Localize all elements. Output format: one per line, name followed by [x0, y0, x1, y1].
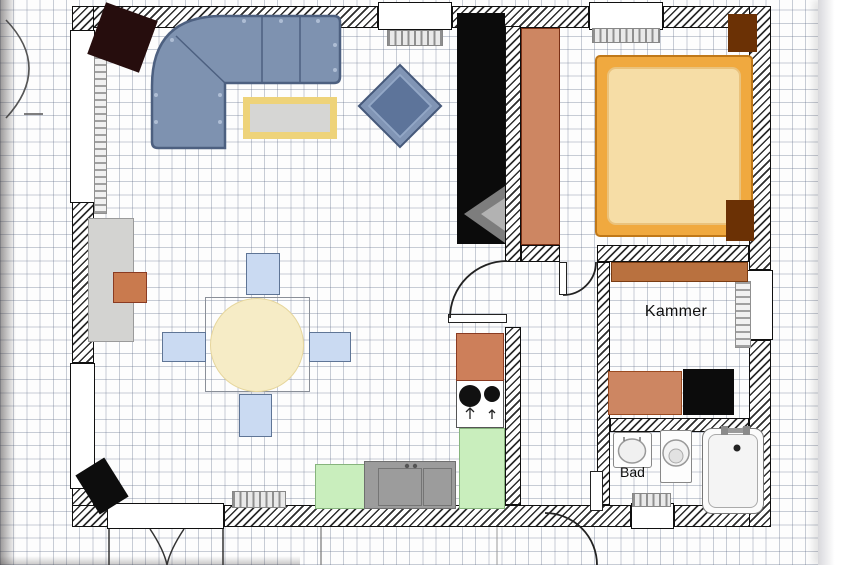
room-label-bad: Bad [620, 464, 664, 480]
stove [456, 380, 504, 428]
window-top-bedroom [589, 2, 663, 30]
window-left-upper [70, 30, 95, 203]
door-leaf-living [448, 314, 507, 323]
sink-basin-left [378, 468, 422, 506]
nightstand-bedroom [728, 14, 757, 52]
bed-mattress [607, 67, 741, 225]
wardrobe-bedroom [521, 28, 560, 245]
coffee-table [243, 97, 337, 139]
washbasin [613, 432, 652, 468]
box-on-sideboard [113, 272, 147, 303]
tv-cabinet [457, 13, 505, 244]
sink-basin-right [423, 468, 452, 506]
armchair-seat [367, 73, 432, 138]
cabinet-kammer-black [683, 369, 734, 415]
door-leaf-entry [590, 471, 603, 511]
counter-green-left [315, 464, 365, 509]
radiator-left-wall [94, 36, 107, 214]
chair-east [309, 332, 351, 362]
kitchen-cabinet [456, 333, 504, 381]
radiator-living-top [387, 30, 443, 46]
floor-plan-page: Kammer Bad [0, 0, 848, 565]
radiator-living-bottom [232, 491, 286, 508]
door-leaf-bedroom [559, 262, 567, 295]
wall-living-hall-lower [505, 327, 521, 505]
counter-green-right [459, 428, 505, 509]
radiator-bedroom [592, 28, 660, 43]
floor-plan [0, 0, 848, 565]
chair-south [239, 394, 272, 437]
french-door-opening [107, 503, 224, 529]
room-label-kammer: Kammer [636, 303, 716, 321]
rug-bad [632, 493, 671, 507]
window-top-living [378, 2, 452, 30]
dining-table-top [210, 298, 304, 392]
cabinet-kammer-orange [608, 371, 682, 415]
wall-bedroom-hall [521, 245, 560, 262]
chair-west [162, 332, 206, 362]
wall-bedroom-kammer [597, 245, 749, 262]
bathtub-inner [708, 434, 758, 508]
wall-left-top [72, 6, 94, 32]
bed-footboard [726, 200, 754, 241]
page-shadow-bottom [0, 556, 300, 565]
wall-living-hall-upper [505, 26, 521, 262]
shelf-kammer-top [611, 262, 748, 282]
chair-north [246, 253, 280, 295]
page-curl-right [818, 0, 848, 565]
page-shadow-left [0, 0, 16, 565]
shelf-kammer-right [735, 281, 751, 348]
toilet-body [660, 430, 692, 483]
